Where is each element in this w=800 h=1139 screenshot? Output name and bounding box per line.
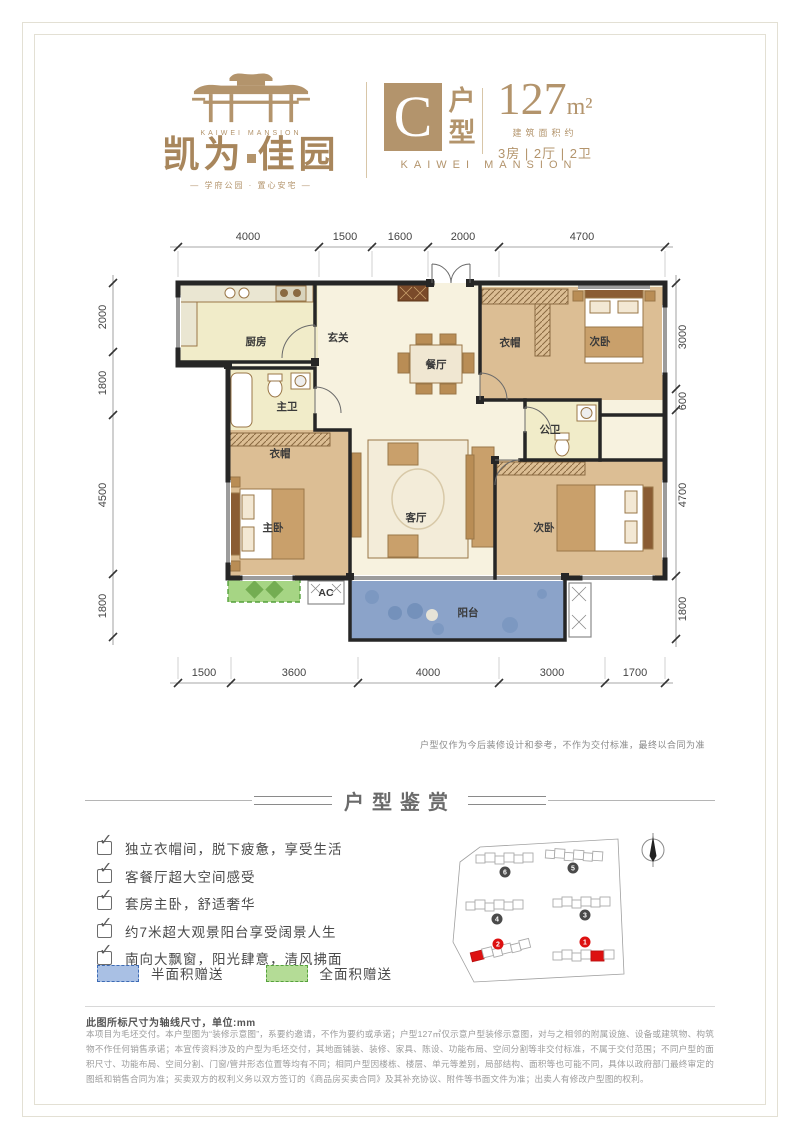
check-icon: ✓: [97, 896, 112, 910]
section-line-right: [548, 800, 715, 801]
building-cluster: [545, 848, 603, 863]
svg-text:餐厅: 餐厅: [425, 358, 447, 371]
check-icon: ✓: [97, 924, 112, 938]
svg-text:衣帽: 衣帽: [500, 336, 521, 349]
legend-swatch-half: [97, 965, 139, 982]
svg-text:衣帽: 衣帽: [270, 447, 291, 460]
section-line-left: [85, 800, 252, 801]
legend-swatch-full: [266, 965, 308, 982]
building-cluster: [466, 900, 523, 911]
brand-en: KAIWEI MANSION: [378, 159, 600, 171]
svg-text:6: 6: [503, 870, 507, 877]
svg-text:次卧: 次卧: [590, 335, 611, 348]
svg-text:1600: 1600: [388, 231, 412, 243]
feature-list: ✓ 独立衣帽间，脱下疲惫，享受生活 ✓ 客餐厅超大空间感受 ✓ 套房主卧，舒适奢…: [97, 840, 427, 978]
svg-text:1500: 1500: [333, 231, 357, 243]
svg-text:主卧: 主卧: [263, 521, 284, 534]
floor-plan: AC: [80, 225, 720, 735]
svg-text:3600: 3600: [282, 667, 306, 679]
legend-label-full: 全面积赠送: [320, 963, 393, 983]
legend-label-half: 半面积赠送: [151, 963, 224, 983]
brand-logo: KAIWEI MANSION 凯为佳园 — 学府公园 · 置心安宅 —: [145, 66, 357, 191]
feature-item: ✓ 独立衣帽间，脱下疲惫，享受生活: [97, 840, 427, 856]
section-title: 户型鉴赏: [344, 786, 456, 815]
feature-item: ✓ 套房主卧，舒适奢华: [97, 895, 427, 911]
check-icon: ✓: [97, 869, 112, 883]
svg-text:1800: 1800: [677, 597, 689, 621]
area-unit: m²: [567, 94, 593, 120]
svg-text:2000: 2000: [97, 305, 109, 329]
building-cluster: [553, 897, 610, 908]
svg-text:1700: 1700: [623, 667, 647, 679]
svg-text:4: 4: [495, 917, 499, 924]
feature-item: ✓ 约7米超大观景阳台享受阔景人生: [97, 923, 427, 939]
svg-text:次卧: 次卧: [534, 521, 555, 534]
area-value: 127: [498, 73, 567, 124]
svg-text:600: 600: [677, 392, 689, 410]
svg-text:4000: 4000: [236, 231, 260, 243]
svg-text:玄关: 玄关: [328, 331, 349, 344]
feature-item: ✓ 客餐厅超大空间感受: [97, 868, 427, 884]
bay-window-area: [228, 578, 300, 602]
section-double-line-left: [254, 796, 332, 805]
svg-text:4000: 4000: [416, 667, 440, 679]
site-map: 6 5 4 3 2 1: [448, 820, 698, 1005]
svg-text:4700: 4700: [677, 483, 689, 507]
divider-rule: [85, 1006, 715, 1007]
brand-tagline: — 学府公园 · 置心安宅 —: [145, 180, 357, 191]
gift-legend: 半面积赠送 全面积赠送: [97, 963, 392, 983]
svg-text:3: 3: [583, 913, 587, 920]
svg-text:阳台: 阳台: [458, 606, 479, 619]
header-divider-2: [482, 88, 483, 154]
svg-text:3000: 3000: [677, 325, 689, 349]
svg-text:2000: 2000: [451, 231, 475, 243]
unit-badge: C: [384, 83, 442, 151]
svg-text:1800: 1800: [97, 371, 109, 395]
svg-text:3000: 3000: [540, 667, 564, 679]
disclaimer: 本项目为毛坯交付。本户型图为“装修示意图”，系要约邀请，不作为要约或承诺；户型1…: [86, 1027, 714, 1087]
header-divider-1: [366, 82, 367, 178]
svg-text:1800: 1800: [97, 594, 109, 618]
section-double-line-right: [468, 796, 546, 805]
svg-text:2: 2: [496, 942, 500, 949]
building-cluster: [476, 853, 533, 864]
seal-icon: [247, 154, 256, 163]
svg-text:4700: 4700: [570, 231, 594, 243]
plan-note: 户型仅作为今后装修设计和参考，不作为交付标准，最终以合同为准: [280, 738, 705, 751]
svg-text:1: 1: [583, 940, 587, 947]
area-note: 建筑面积约: [490, 126, 600, 139]
svg-text:客厅: 客厅: [405, 511, 427, 524]
section-header: 户型鉴赏: [85, 786, 715, 815]
svg-text:4500: 4500: [97, 483, 109, 507]
unit-type-label: 户 型: [447, 85, 477, 150]
svg-text:1500: 1500: [192, 667, 216, 679]
svg-text:厨房: 厨房: [246, 335, 267, 348]
compass-icon: [642, 833, 664, 867]
svg-text:AC: AC: [318, 587, 334, 599]
gate-icon: [190, 66, 312, 124]
building-cluster-highlight: [553, 950, 614, 961]
unit-letter: C: [394, 88, 433, 146]
brand-name: 凯为佳园: [145, 137, 357, 176]
svg-text:5: 5: [571, 866, 575, 873]
area-block: 127m² 建筑面积约 3房 | 2厅 | 2卫: [490, 76, 600, 162]
svg-text:公卫: 公卫: [540, 424, 561, 436]
svg-text:主卫: 主卫: [277, 400, 298, 413]
check-icon: ✓: [97, 841, 112, 855]
poster: KAIWEI MANSION 凯为佳园 — 学府公园 · 置心安宅 — C 户 …: [0, 0, 800, 1139]
